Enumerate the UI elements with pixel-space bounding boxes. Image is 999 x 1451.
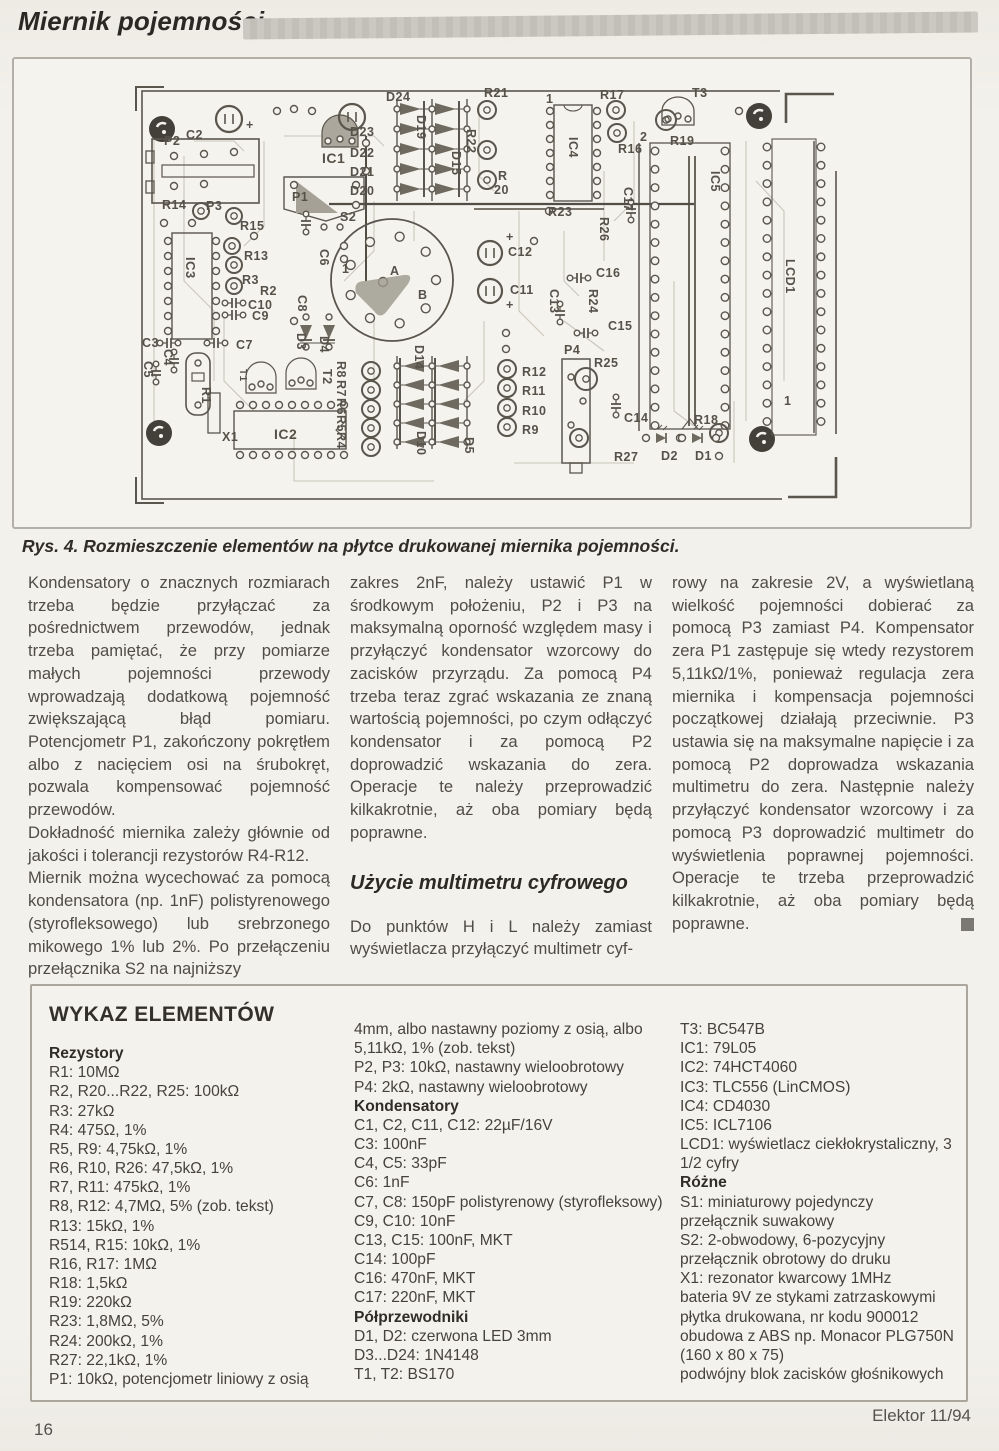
article-paragraph: Do punktów H i L należy zamiast wyświetl… [350, 916, 652, 961]
parts-list-line: 4mm, albo nastawny poziomy z osią, albo [354, 1020, 676, 1039]
pcb-component-label: C2 [186, 128, 203, 142]
pcb-component-label: R16 [618, 142, 642, 156]
parts-list-line: R3: 27kΩ [49, 1102, 349, 1121]
pcb-component-label: D24 [386, 90, 410, 104]
journal-name: Elektor 11/94 [872, 1406, 971, 1426]
parts-list-line: R8, R12: 4,7MΩ, 5% (zob. tekst) [49, 1197, 349, 1216]
pcb-component-label: R4 [334, 432, 348, 449]
pcb-component-label: S2 [340, 210, 356, 224]
parts-list-line: R5, R9: 4,75kΩ, 1% [49, 1140, 349, 1159]
pcb-component-label: R2 [260, 284, 277, 298]
parts-list-line: D3...D24: 1N4148 [354, 1346, 676, 1365]
parts-list-line: C17: 220nF, MKT [354, 1288, 676, 1307]
article-paragraph: Miernik można wycechować za pomocą konde… [28, 867, 330, 981]
pcb-component-label: R24 [586, 289, 600, 313]
magazine-page: Miernik pojemności P2C2+IC1P1D24D23D22D2… [0, 0, 999, 1451]
pcb-component-label: R3 [242, 273, 259, 287]
pcb-figure: P2C2+IC1P1D24D23D22D21D20D19D15R22R21R17… [12, 57, 972, 529]
pcb-component-label: D10 [414, 431, 428, 455]
parts-list-line: T1, T2: BS170 [354, 1365, 676, 1384]
article-column-1: Kondensatory o znacznych rozmiarach trze… [28, 572, 330, 981]
parts-list-line: IC3: TLC556 (LinCMOS) [680, 1078, 955, 1097]
parts-list-line: IC5: ICL7106 [680, 1116, 955, 1135]
parts-list-line: IC4: CD4030 [680, 1097, 955, 1116]
pcb-component-label: C4 [161, 349, 175, 366]
pcb-component-label: 2 [640, 130, 647, 144]
pcb-component-label: R18 [694, 413, 718, 427]
pcb-component-label: C8 [295, 295, 309, 312]
pcb-component-label: 1 [546, 92, 553, 106]
section-heading: Użycie multimetru cyfrowego [350, 871, 652, 896]
pcb-component-label: R13 [244, 249, 268, 263]
pcb-component-label: + [506, 230, 514, 244]
pcb-component-label: R10 [522, 404, 546, 418]
parts-list-line: IC1: 79L05 [680, 1039, 955, 1058]
parts-list-line: R4: 475Ω, 1% [49, 1121, 349, 1140]
pcb-component-label: C11 [510, 283, 534, 297]
pcb-component-label: C9 [252, 309, 269, 323]
pcb-component-label: C16 [596, 266, 620, 280]
pcb-component-label: D4 [317, 336, 331, 353]
pcb-component-label: D19 [414, 115, 428, 139]
pcb-component-label: D1 [695, 449, 712, 463]
parts-list-line: R1: 10MΩ [49, 1063, 349, 1082]
pcb-component-label: R12 [522, 365, 546, 379]
page-title: Miernik pojemności [18, 6, 264, 37]
parts-list-line: T3: BC547B [680, 1020, 955, 1039]
pcb-component-label: P4 [564, 343, 580, 357]
pcb-component-label: R15 [240, 219, 264, 233]
parts-list-line: bateria 9V ze stykami zatrzaskowymi [680, 1288, 955, 1307]
pcb-component-label: D14 [412, 345, 426, 369]
parts-column-2: 4mm, albo nastawny poziomy z osią, albo5… [354, 1020, 676, 1384]
parts-list-line: płytka drukowana, nr kodu 900012 [680, 1308, 955, 1327]
pcb-component-label: R25 [594, 356, 618, 370]
pcb-component-label: C5 [141, 361, 155, 378]
article-paragraph: rowy na zakresie 2V, a wyświetlaną wielk… [672, 572, 974, 936]
pcb-component-label: T1 [237, 369, 248, 382]
pcb-component-label: R [498, 169, 508, 183]
pcb-component-label: R5 [334, 415, 348, 432]
parts-list-title: WYKAZ ELEMENTÓW [49, 1003, 274, 1027]
pcb-component-label: D20 [350, 184, 374, 198]
pcb-component-label: LCD1 [783, 259, 797, 294]
parts-list-line: R19: 220kΩ [49, 1293, 349, 1312]
parts-column-3: T3: BC547BIC1: 79L05IC2: 74HCT4060IC3: T… [680, 1020, 955, 1384]
article-column-2: zakres 2nF, należy ustawić P1 w środkowy… [350, 572, 652, 961]
parts-list-line: R23: 1,8MΩ, 5% [49, 1312, 349, 1331]
pcb-component-label: R23 [548, 205, 572, 219]
pcb-component-label: R27 [614, 450, 638, 464]
parts-list-line: 5,11kΩ, 1% (zob. tekst) [354, 1039, 676, 1058]
pcb-component-label: C15 [608, 319, 632, 333]
pcb-component-label: R17 [600, 88, 624, 102]
parts-list-line: C9, C10: 10nF [354, 1212, 676, 1231]
pcb-component-label: R6 [334, 398, 348, 415]
parts-list-box: WYKAZ ELEMENTÓW RezystoryR1: 10MΩR2, R20… [30, 984, 968, 1402]
pcb-component-label: R19 [670, 134, 694, 148]
page-number: 16 [34, 1420, 53, 1440]
parts-list-line: C16: 470nF, MKT [354, 1269, 676, 1288]
pcb-component-label: C3 [142, 336, 159, 350]
pcb-component-label: P1 [292, 190, 308, 204]
parts-list-line: R6, R10, R26: 47,5kΩ, 1% [49, 1159, 349, 1178]
parts-list-line: Różne [680, 1173, 955, 1192]
pcb-component-label: D22 [350, 146, 374, 160]
pcb-component-label: R26 [597, 217, 611, 241]
pcb-component-label: + [246, 118, 254, 132]
parts-list-line: podwójny blok zacisków głośnikowych [680, 1365, 955, 1384]
parts-list-line: R24: 200kΩ, 1% [49, 1332, 349, 1351]
pcb-layout-drawing: P2C2+IC1P1D24D23D22D21D20D19D15R22R21R17… [134, 81, 854, 513]
pcb-component-label: IC5 [708, 171, 722, 192]
pcb-component-label: IC3 [183, 257, 198, 279]
article-paragraph: Kondensatory o znacznych rozmiarach trze… [28, 572, 330, 822]
pcb-component-label: T2 [320, 369, 334, 385]
pcb-component-label: C6 [317, 249, 331, 266]
pcb-component-label: C13 [547, 289, 561, 313]
pcb-component-label: P2 [164, 134, 180, 148]
parts-list-line: R7, R11: 475kΩ, 1% [49, 1178, 349, 1197]
parts-list-line: D1, D2: czerwona LED 3mm [354, 1327, 676, 1346]
pcb-component-label: R1 [199, 387, 213, 404]
parts-list-line: P1: 10kΩ, potencjometr liniowy z osią [49, 1370, 349, 1389]
pcb-component-label: IC4 [566, 137, 580, 158]
parts-list-line: C13, C15: 100nF, MKT [354, 1231, 676, 1250]
pcb-component-label: D23 [350, 125, 374, 139]
pcb-component-label: D21 [350, 165, 374, 179]
pcb-component-label: X1 [222, 430, 238, 444]
pcb-component-label: C12 [508, 245, 532, 259]
parts-list-line: R13: 15kΩ, 1% [49, 1217, 349, 1236]
parts-list-line: Rezystory [49, 1044, 349, 1063]
parts-list-line: R514, R15: 10kΩ, 1% [49, 1236, 349, 1255]
pcb-component-label: 1 [784, 394, 791, 408]
pcb-component-label: R22 [464, 129, 478, 153]
parts-list-line: C6: 1nF [354, 1173, 676, 1192]
parts-list-line: X1: rezonator kwarcowy 1MHz [680, 1269, 955, 1288]
pcb-component-label: R21 [484, 86, 508, 100]
parts-list-line: Półprzewodniki [354, 1308, 676, 1327]
parts-list-line: R16, R17: 1MΩ [49, 1255, 349, 1274]
pcb-component-label: D2 [661, 449, 678, 463]
parts-list-line: C4, C5: 33pF [354, 1154, 676, 1173]
parts-list-line: P4: 2kΩ, nastawny wieloobrotowy [354, 1078, 676, 1097]
parts-list-line: P2, P3: 10kΩ, nastawny wieloobrotowy [354, 1058, 676, 1077]
pcb-component-label: B [418, 288, 428, 302]
parts-list-line: R27: 22,1kΩ, 1% [49, 1351, 349, 1370]
pcb-component-label: IC2 [274, 426, 297, 442]
parts-list-line: Kondensatory [354, 1097, 676, 1116]
pcb-component-label: D5 [462, 437, 476, 454]
pcb-component-label: R14 [162, 198, 186, 212]
article-paragraph: zakres 2nF, należy ustawić P1 w środkowy… [350, 572, 652, 845]
parts-list-line: obudowa z ABS np. Monacor PLG750N (160 x… [680, 1327, 955, 1365]
pcb-component-label: C17 [621, 187, 635, 211]
parts-list-line: C1, C2, C11, C12: 22µF/16V [354, 1116, 676, 1135]
pcb-component-label: C7 [236, 338, 253, 352]
parts-list-line: S2: 2-obwodowy, 6-pozycyjny przełącznik … [680, 1231, 955, 1269]
parts-list-line: C14: 100pF [354, 1250, 676, 1269]
header-decorative-bar [243, 11, 978, 39]
article-end-mark [961, 918, 974, 931]
parts-list-line: R2, R20...R22, R25: 100kΩ [49, 1082, 349, 1101]
parts-list-line: C7, C8: 150pF polistyrenowy (styroflekso… [354, 1193, 676, 1212]
pcb-component-label: 1 [342, 262, 349, 276]
parts-list-line: C3: 100nF [354, 1135, 676, 1154]
pcb-component-label: D3 [294, 333, 308, 350]
pcb-component-label: IC1 [322, 150, 345, 166]
figure-caption: Rys. 4. Rozmieszczenie elementów na płyt… [22, 536, 679, 557]
pcb-component-label: 20 [494, 183, 509, 197]
article-column-3: rowy na zakresie 2V, a wyświetlaną wielk… [672, 572, 974, 936]
pcb-component-label: R7 [334, 380, 348, 397]
pcb-component-label: A [390, 264, 400, 278]
pcb-component-label: T3 [692, 86, 708, 100]
parts-list-line: R18: 1,5kΩ [49, 1274, 349, 1293]
parts-list-line: IC2: 74HCT4060 [680, 1058, 955, 1077]
pcb-component-label: P3 [206, 199, 222, 213]
pcb-component-label: R9 [522, 423, 539, 437]
pcb-component-label: C14 [624, 411, 648, 425]
pcb-component-label: D15 [449, 151, 463, 175]
article-paragraph: Dokładność miernika zależy głównie od ja… [28, 822, 330, 867]
parts-list-line: S1: miniaturowy pojedynczy przełącznik s… [680, 1193, 955, 1231]
parts-list-line: LCD1: wyświetlacz ciekłokrystaliczny, 3 … [680, 1135, 955, 1173]
pcb-component-label: R8 [334, 361, 348, 378]
pcb-component-label: + [506, 298, 514, 312]
pcb-component-label: R11 [522, 384, 546, 398]
parts-column-1: RezystoryR1: 10MΩR2, R20...R22, R25: 100… [49, 1044, 349, 1389]
